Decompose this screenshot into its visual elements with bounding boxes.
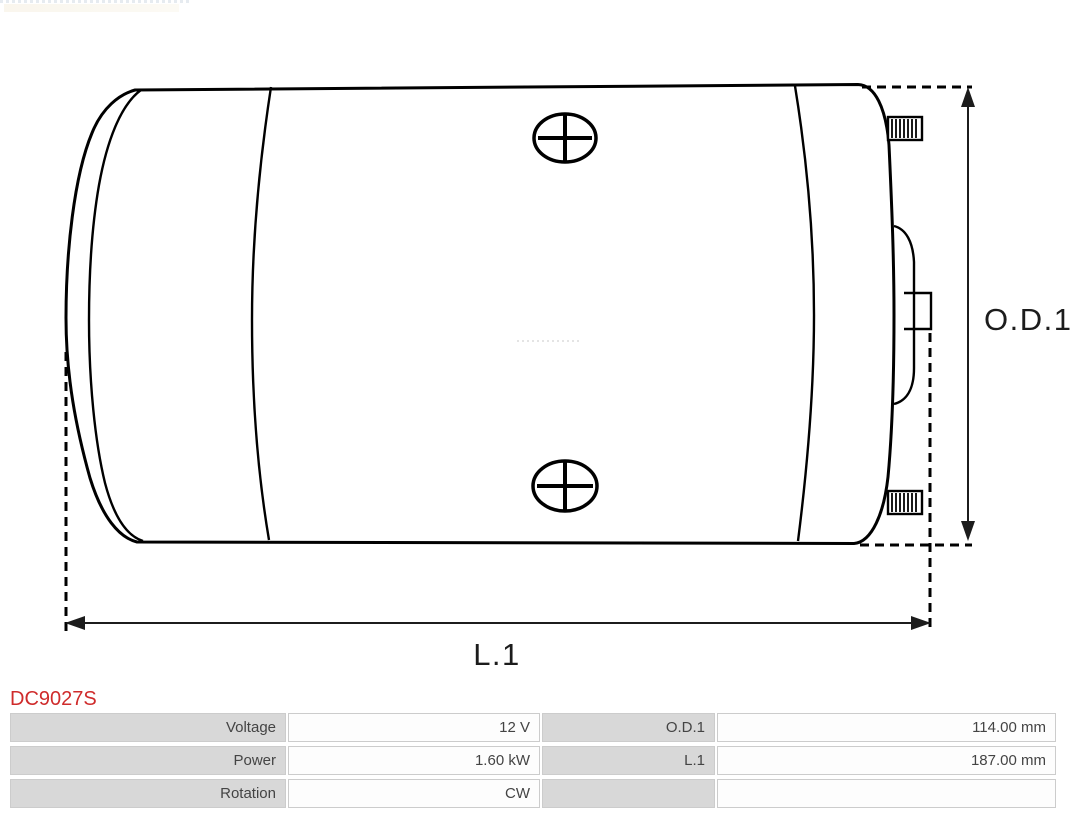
spec-label-rotation: Rotation <box>10 779 286 808</box>
table-row: Rotation CW <box>10 779 1056 808</box>
left-body-seam <box>252 87 271 540</box>
spec-value-rotation: CW <box>288 779 540 808</box>
arrow-left-icon <box>65 616 85 630</box>
right-body-seam <box>795 86 814 541</box>
od1-dimension: O.D.1 <box>961 87 1072 541</box>
phillips-screw-top-icon <box>534 114 596 162</box>
spec-value-empty <box>717 779 1056 808</box>
table-row: Voltage 12 V O.D.1 114.00 mm <box>10 713 1056 742</box>
arrow-right-icon <box>911 616 931 630</box>
extension-lines <box>66 87 972 633</box>
od1-dimension-label: O.D.1 <box>984 302 1072 337</box>
spec-label-empty <box>542 779 715 808</box>
spec-value-od1: 114.00 mm <box>717 713 1056 742</box>
table-row: Power 1.60 kW L.1 187.00 mm <box>10 746 1056 775</box>
part-code-title: DC9027S <box>10 688 97 710</box>
spec-value-voltage: 12 V <box>288 713 540 742</box>
terminal-stud-top-icon <box>888 117 922 140</box>
spec-value-power: 1.60 kW <box>288 746 540 775</box>
terminal-stud-bottom-icon <box>888 491 922 514</box>
l1-dimension-label: L.1 <box>473 637 521 672</box>
l1-dimension: L.1 <box>65 616 931 672</box>
phillips-screw-bottom-icon <box>533 461 597 511</box>
spec-label-power: Power <box>10 746 286 775</box>
spec-label-voltage: Voltage <box>10 713 286 742</box>
motor-body-outline <box>66 85 894 544</box>
spec-label-l1: L.1 <box>542 746 715 775</box>
arrow-down-icon <box>961 521 975 541</box>
left-cap-inner-seam <box>89 90 143 541</box>
spec-label-od1: O.D.1 <box>542 713 715 742</box>
rear-boss-outline <box>894 226 914 404</box>
spec-value-l1: 187.00 mm <box>717 746 1056 775</box>
arrow-up-icon <box>961 87 975 107</box>
spec-table: Voltage 12 V O.D.1 114.00 mm Power 1.60 … <box>10 713 1056 812</box>
shaft-stub <box>904 293 931 329</box>
motor-technical-drawing: O.D.1 L.1 <box>0 0 1080 685</box>
